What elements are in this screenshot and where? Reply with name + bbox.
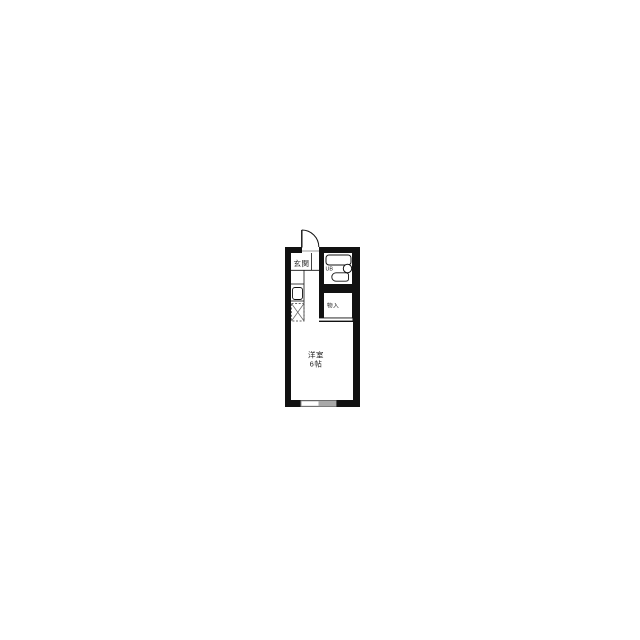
main-room-size-label: 6帖 [310,359,323,369]
toilet-icon [332,273,349,281]
outer-wall-left [285,247,291,407]
window-icon [301,401,336,407]
washbasin-icon [343,264,351,272]
main-room: 洋室 6帖 [308,350,324,369]
main-room-label: 洋室 [308,350,324,360]
floor-plan-page: 玄関 UB 物入 洋室 6帖 [0,0,640,640]
window-pane-right [319,401,337,407]
closet-door [319,318,353,320]
unit-bath-label: UB [326,267,334,273]
bathtub-icon [326,255,351,265]
storage-label: 物入 [327,302,339,310]
kitchen-sink-icon [293,288,303,300]
entrance-label: 玄関 [294,258,310,268]
floor-plan-svg: 玄関 UB 物入 洋室 6帖 [0,0,640,640]
